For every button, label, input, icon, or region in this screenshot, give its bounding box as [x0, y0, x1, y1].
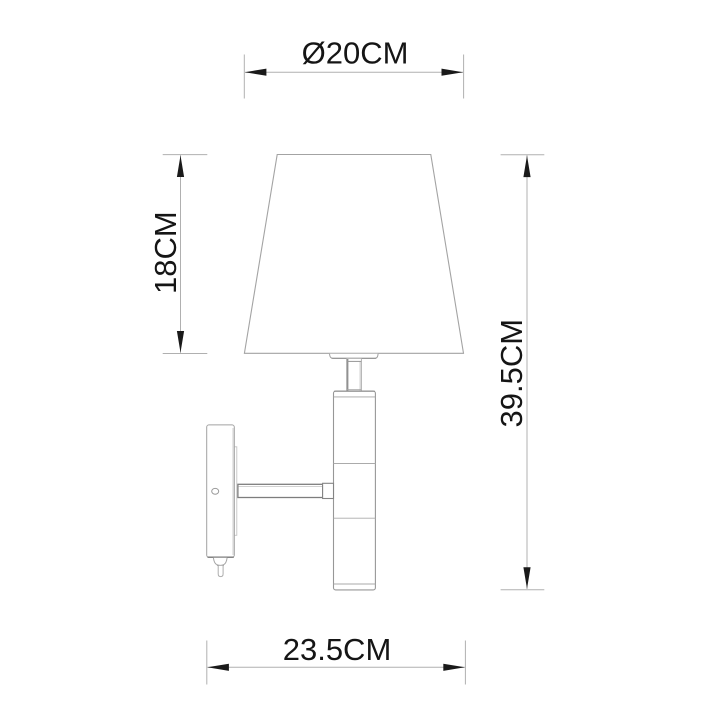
svg-text:18CM: 18CM [148, 211, 183, 294]
svg-text:39.5CM: 39.5CM [494, 319, 529, 428]
svg-text:Ø20CM: Ø20CM [302, 36, 409, 71]
svg-text:23.5CM: 23.5CM [283, 632, 392, 667]
